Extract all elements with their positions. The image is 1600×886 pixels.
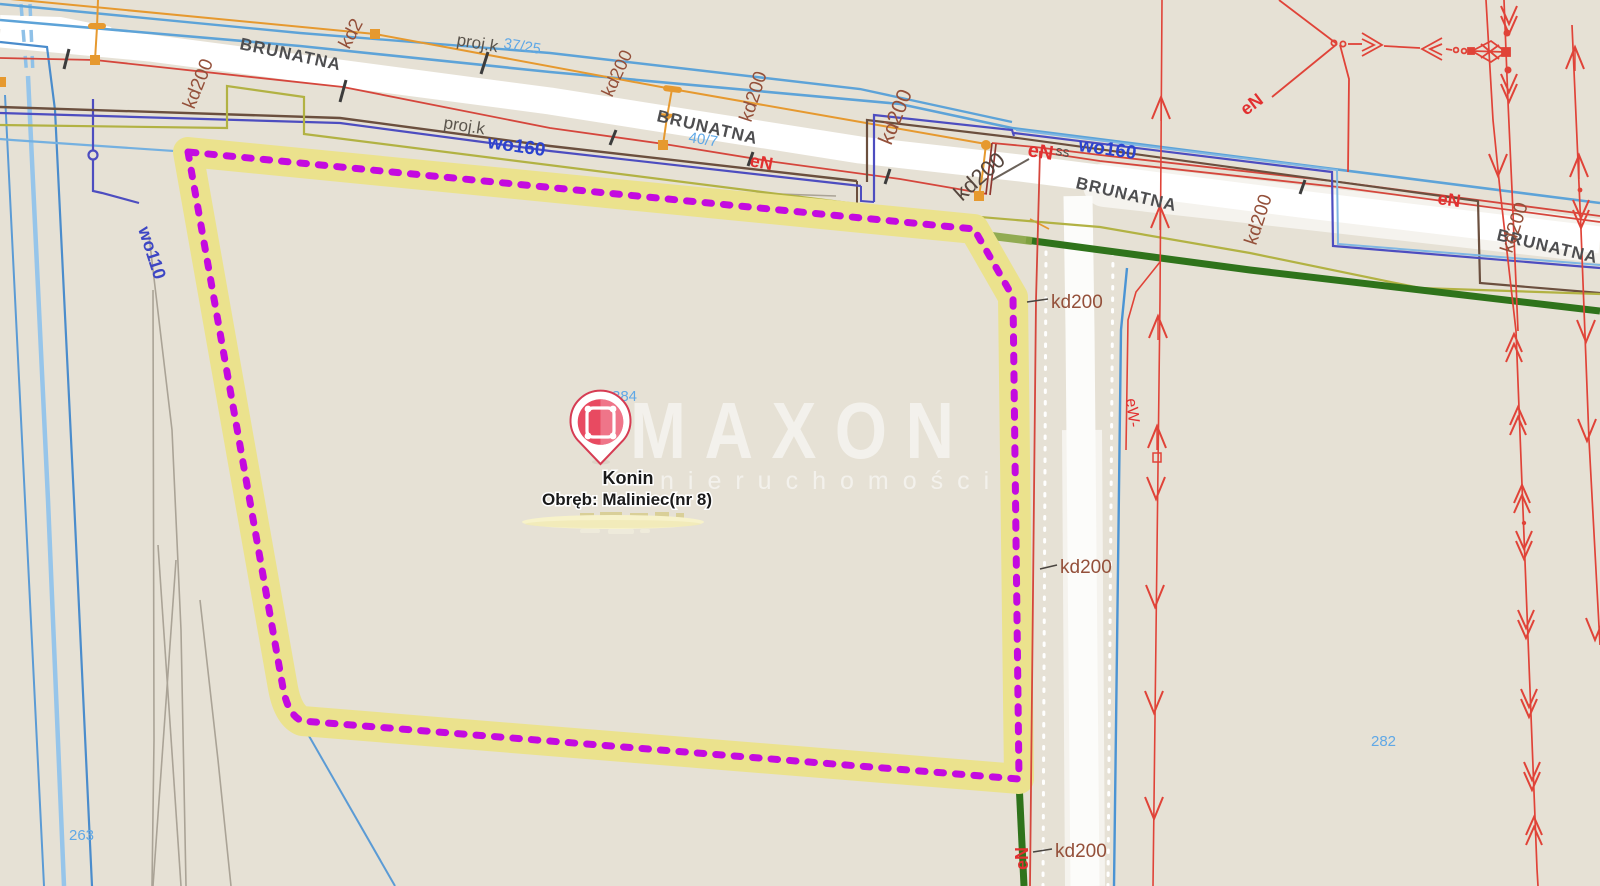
svg-text:Konin: Konin bbox=[603, 468, 654, 488]
svg-text:kd200: kd200 bbox=[1051, 292, 1103, 313]
svg-text:Obręb: Maliniec(nr 8): Obręb: Maliniec(nr 8) bbox=[542, 490, 712, 509]
svg-text:eN: eN bbox=[1436, 188, 1462, 211]
svg-text:MAXON: MAXON bbox=[630, 385, 972, 475]
svg-text:eN: eN bbox=[1026, 139, 1055, 165]
svg-text:263: 263 bbox=[69, 827, 94, 844]
svg-text:kd200: kd200 bbox=[1060, 557, 1112, 578]
svg-text:282: 282 bbox=[1371, 733, 1396, 750]
svg-text:ss: ss bbox=[1055, 142, 1071, 160]
svg-text:kd200: kd200 bbox=[1055, 841, 1107, 862]
svg-text:eN: eN bbox=[1012, 847, 1032, 870]
svg-text:eW-: eW- bbox=[1122, 397, 1142, 428]
